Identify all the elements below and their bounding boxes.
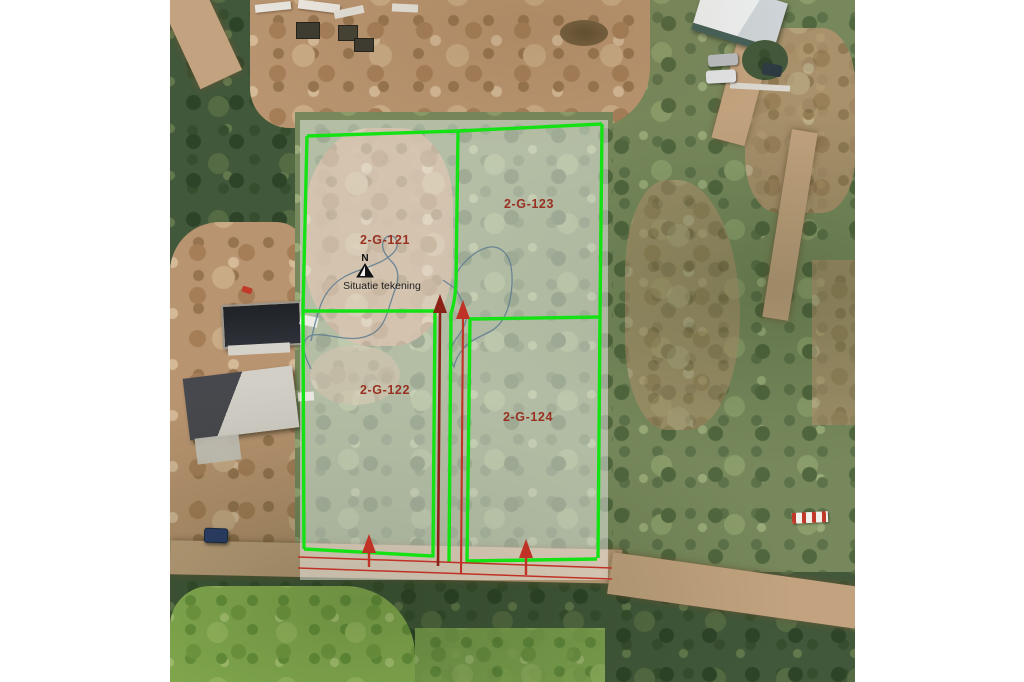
drawing-caption: Situatie tekening xyxy=(343,280,421,292)
north-letter: N xyxy=(361,253,368,264)
parcel-121-label: 2-G-121 xyxy=(360,233,410,247)
parcel-124-label: 2-G-124 xyxy=(503,410,553,424)
white-margin-right xyxy=(855,0,1024,682)
lightened-parcel-area xyxy=(300,120,608,580)
parcel-123-label: 2-G-123 xyxy=(504,197,554,211)
white-margin-left xyxy=(0,0,170,682)
situation-drawing-page: N 2-G-121 2-G-123 2-G-122 2-G-124 Situat… xyxy=(0,0,1024,682)
parcel-122-label: 2-G-122 xyxy=(360,383,410,397)
